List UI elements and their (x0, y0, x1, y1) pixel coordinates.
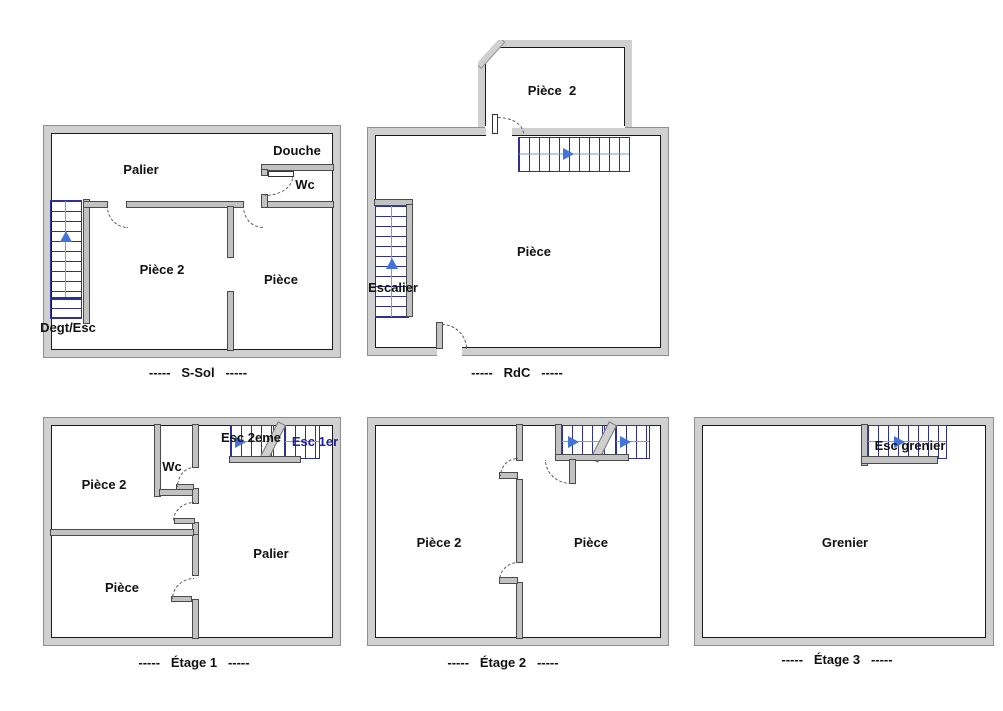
wall (262, 202, 333, 207)
up-arrow-icon (386, 258, 398, 269)
room-label-piece: Pièce (264, 273, 298, 287)
wall (556, 425, 561, 458)
door-arc (172, 578, 194, 599)
wall (155, 425, 160, 496)
stairs-rdc-escalier (375, 205, 409, 318)
wall (262, 165, 333, 170)
stairs-landing-ssol (50, 298, 82, 319)
up-arrow-icon (60, 231, 72, 242)
wall (517, 480, 522, 562)
room-label-piece2-e2: Pièce 2 (417, 536, 462, 550)
room-label-piece-rdc: Pièce (517, 245, 551, 259)
stair-label-esc-grenier: Esc grenier (875, 439, 946, 453)
room-label-piece2-e1: Pièce 2 (82, 478, 127, 492)
plan-rdc: Pièce Escalier (368, 128, 668, 355)
door-arc (243, 207, 263, 228)
stairs-etage2-right-run (615, 425, 650, 459)
wall (262, 195, 267, 207)
outer-wall-etage3 (695, 418, 993, 645)
wall (51, 530, 193, 535)
caption-ssol: ----- S-Sol ----- (149, 366, 247, 380)
room-label-piece2-rdc: Pièce 2 (528, 84, 576, 98)
room-label-palier: Palier (123, 163, 158, 177)
right-arrow-icon (568, 436, 579, 448)
room-label-piece2: Pièce 2 (140, 263, 185, 277)
room-label-piece-e1: Pièce (105, 581, 139, 595)
room-label-palier-e1: Palier (253, 547, 288, 561)
plan-ssol: Palier Douche Wc Pièce 2 Pièce Degt/Esc (44, 126, 340, 357)
room-label-degt-esc: Degt/Esc (40, 321, 96, 335)
room-label-douche: Douche (273, 144, 321, 158)
wall (228, 207, 233, 257)
wall (228, 292, 233, 350)
door-arc (499, 562, 518, 581)
caption-etage3: ----- Étage 3 ----- (781, 653, 892, 667)
room-label-wc: Wc (295, 178, 315, 192)
stair-label-esc-2eme: Esc 2eme (221, 431, 281, 445)
door-arc (442, 324, 467, 349)
stair-label-esc-1er: Esc 1er (292, 435, 338, 449)
wall (407, 205, 412, 316)
door-arc (173, 502, 194, 521)
plan-etage2: Pièce 2 Pièce (368, 418, 668, 645)
wall (84, 200, 89, 323)
room-label-grenier: Grenier (822, 536, 868, 550)
floorplan-canvas: Palier Douche Wc Pièce 2 Pièce Degt/Esc … (0, 0, 1003, 711)
door-arc (265, 177, 293, 196)
wall (127, 202, 243, 207)
wall (262, 170, 267, 175)
door-arc (107, 207, 128, 228)
wall (193, 535, 198, 575)
door-arc (500, 458, 518, 476)
wall (193, 523, 198, 535)
wall (517, 425, 522, 460)
wall (193, 425, 198, 467)
wall (517, 583, 522, 638)
door-arc (545, 460, 571, 484)
right-arrow-icon (620, 436, 631, 448)
room-label-piece-e2: Pièce (574, 536, 608, 550)
chamfer-wall (475, 36, 506, 69)
wall (84, 202, 107, 207)
plan-etage1: Pièce 2 Wc Esc 2eme Esc 1er Palier Pièce (44, 418, 340, 645)
wall (230, 457, 300, 462)
caption-etage2: ----- Étage 2 ----- (447, 656, 558, 670)
plan-rdc-annex: Pièce 2 (478, 40, 632, 129)
room-label-wc-e1: Wc (162, 460, 182, 474)
wall (862, 457, 937, 463)
stairs-rdc-up (518, 137, 630, 172)
wall (193, 600, 198, 638)
room-label-escalier: Escalier (368, 281, 418, 295)
plan-etage3: Esc grenier Grenier (695, 418, 993, 645)
right-arrow-icon (563, 148, 574, 160)
caption-etage1: ----- Étage 1 ----- (138, 656, 249, 670)
caption-rdc: ----- RdC ----- (471, 366, 563, 380)
wall (193, 489, 198, 503)
stairs-ssol (50, 200, 82, 298)
